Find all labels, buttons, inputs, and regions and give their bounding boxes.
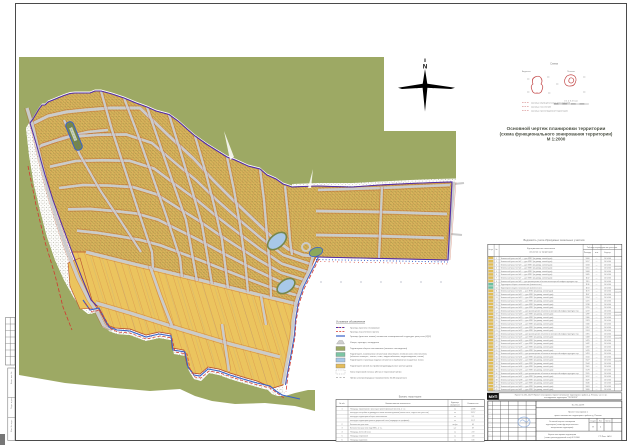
- svg-text:Земельный участок №36 — для ра: Земельный участок №36 — для размещения о…: [501, 372, 580, 375]
- svg-text:—: —: [596, 343, 598, 345]
- svg-text:14: 14: [496, 301, 498, 303]
- svg-text:10:14:00: 10:14:00: [604, 346, 611, 348]
- svg-text:Условные обозначения: Условные обозначения: [336, 320, 366, 324]
- svg-text:2,9: 2,9: [472, 432, 475, 434]
- svg-text:10:14:00: 10:14:00: [604, 363, 611, 365]
- svg-text:шт: шт: [454, 428, 457, 430]
- svg-text:10:14:00: 10:14:00: [604, 314, 611, 316]
- svg-text:17: 17: [496, 310, 498, 312]
- svg-text:Количество участков: Количество участков: [350, 424, 368, 426]
- svg-text:137,7: 137,7: [471, 412, 476, 414]
- svg-text:Земельный участок №28 — для ИЖ: Земельный участок №28 — для ИЖС (индивид…: [501, 345, 554, 348]
- svg-text:1204: 1204: [586, 297, 590, 299]
- svg-text:Земельный участок №13 — для ИЖ: Земельный участок №13 — для ИЖС (индивид…: [501, 296, 554, 299]
- svg-text:—: —: [596, 264, 598, 266]
- svg-text:1221: 1221: [586, 301, 590, 303]
- svg-text:Схема: Схема: [550, 62, 558, 66]
- svg-text:планируемые территории "ПОСЕЛО: планируемые территории "ПОСЕЛОК": [544, 397, 578, 399]
- svg-text:1017: 1017: [586, 261, 590, 263]
- svg-text:1595: 1595: [586, 373, 590, 375]
- svg-text:Количество: Количество: [468, 403, 480, 405]
- svg-text:10:14:00: 10:14:00: [604, 320, 611, 322]
- svg-text:12: 12: [496, 294, 498, 296]
- svg-text:10:14:00: 10:14:00: [604, 343, 611, 345]
- svg-text:10:14:00: 10:14:00: [604, 287, 611, 289]
- svg-text:10:14:00: 10:14:00: [604, 301, 611, 303]
- svg-text:1391: 1391: [586, 333, 590, 335]
- svg-text:3: 3: [496, 264, 497, 266]
- svg-text:Количество участков под ИЖС, в: Количество участков под ИЖС, в т.ч.: [350, 428, 383, 430]
- svg-text:—: —: [596, 301, 598, 303]
- svg-text:1119: 1119: [586, 281, 590, 283]
- svg-text:зона Ж: зона Ж: [615, 291, 621, 293]
- svg-text:28: 28: [496, 346, 498, 348]
- svg-text:1646: 1646: [586, 383, 590, 385]
- svg-text:10:14:00: 10:14:00: [604, 356, 611, 358]
- svg-text:10:14:00: 10:14:00: [604, 278, 611, 280]
- svg-text:10:14:00: 10:14:00: [604, 369, 611, 371]
- svg-text:Земельный участок №22 — для ИЖ: Земельный участок №22 — для ИЖС (индивид…: [501, 326, 554, 329]
- svg-text:29: 29: [496, 350, 498, 352]
- svg-text:Основной чертеж планировки: Основной чертеж планировки: [549, 420, 575, 423]
- svg-text:41: 41: [496, 389, 498, 391]
- svg-text:Земельный участок №16 — для ИЖ: Земельный участок №16 — для ИЖС (индивид…: [501, 306, 554, 309]
- svg-text:Территории общего пользования: Территории общего пользования (зеленые н…: [350, 348, 407, 350]
- svg-text:10:14:00: 10:14:00: [604, 323, 611, 325]
- svg-text:—: —: [596, 389, 598, 391]
- svg-text:40: 40: [496, 386, 498, 388]
- svg-text:объектов на территории: объектов на территории: [529, 252, 553, 254]
- svg-text:—: —: [596, 294, 598, 296]
- svg-text:10:14:00: 10:14:00: [604, 261, 611, 263]
- svg-text:34: 34: [496, 366, 498, 368]
- svg-text:М 1:2000: М 1:2000: [547, 137, 566, 142]
- svg-text:Граница проекта планировки: Граница проекта планировки: [350, 328, 380, 330]
- svg-text:Площадь береговой: Площадь береговой: [350, 434, 368, 437]
- svg-text:—: —: [596, 333, 598, 335]
- svg-text:1: 1: [496, 258, 497, 260]
- svg-text:—: —: [596, 261, 598, 263]
- svg-text:Земельный участок №12 — для ИЖ: Земельный участок №12 — для ИЖС (индивид…: [501, 293, 554, 296]
- svg-text:№: №: [496, 248, 498, 251]
- svg-text:Площадь территории в границах: Площадь территории в границах проектиров…: [350, 408, 406, 410]
- svg-text:1,8: 1,8: [472, 435, 475, 437]
- svg-text:Баланс территории: Баланс территории: [399, 396, 422, 399]
- svg-text:ГП Лист №14: ГП Лист №14: [599, 435, 613, 438]
- svg-text:площадь застройки индивидуальн: площадь застройки индивидуальными жилыми…: [350, 411, 429, 414]
- svg-text:—: —: [596, 376, 598, 378]
- svg-text:№ п/п: № п/п: [339, 402, 344, 405]
- svg-text:~~: ~~: [489, 417, 491, 419]
- svg-text:1578: 1578: [586, 369, 590, 371]
- svg-text:1323: 1323: [586, 320, 590, 322]
- svg-text:10:14:00: 10:14:00: [604, 340, 611, 342]
- svg-text:1459: 1459: [586, 346, 590, 348]
- svg-text:2: 2: [341, 424, 342, 426]
- svg-text:Земельный участок №15 — для ИЖ: Земельный участок №15 — для ИЖС (индивид…: [501, 303, 554, 306]
- svg-text:1187: 1187: [586, 294, 590, 296]
- svg-text:Земельный участок №33 — для ИЖ: Земельный участок №33 — для ИЖС (индивид…: [501, 362, 554, 365]
- svg-text:Земельный участок №39 — для ИЖ: Земельный участок №39 — для ИЖС (индивид…: [501, 382, 554, 385]
- svg-text:1663: 1663: [586, 386, 590, 388]
- svg-text:—: —: [596, 383, 598, 385]
- svg-text:—: —: [596, 353, 598, 355]
- svg-text:10:14:00: 10:14:00: [604, 360, 611, 362]
- svg-text:Земельный участок №26 — для ИЖ: Земельный участок №26 — для ИЖС (индивид…: [501, 339, 554, 342]
- svg-text:Земельный участок №40 — для ИЖ: Земельный участок №40 — для ИЖС (индивид…: [501, 385, 554, 388]
- svg-text:—: —: [596, 278, 598, 280]
- svg-text:5: 5: [341, 435, 342, 437]
- svg-text:1034: 1034: [586, 264, 590, 266]
- svg-text:1425: 1425: [586, 340, 590, 342]
- svg-text:32: 32: [496, 360, 498, 362]
- svg-text:площадь территории общего поль: площадь территории общего пользования: [350, 416, 387, 418]
- svg-text:10:14:00: 10:14:00: [604, 291, 611, 293]
- svg-text:19: 19: [496, 317, 498, 319]
- svg-text:—: —: [596, 281, 598, 283]
- svg-text:1102: 1102: [586, 278, 590, 280]
- svg-text:10:14:00: 10:14:00: [604, 264, 611, 266]
- svg-text:территории (схема функциональн: территории (схема функционального: [546, 423, 579, 426]
- svg-text:Земельный участок №23 — для ИЖ: Земельный участок №23 — для ИЖС (индивид…: [501, 329, 554, 332]
- svg-text:Основной чертеж планировки тер: Основной чертеж планировки территории: [507, 125, 606, 131]
- svg-text:границы проектируемой территор: границы проектируемой территории: [531, 110, 569, 113]
- svg-text:22: 22: [496, 327, 498, 329]
- svg-text:Инв. № подл.: Инв. № подл.: [10, 419, 13, 432]
- svg-text:11: 11: [496, 291, 498, 293]
- svg-text:1527: 1527: [586, 360, 590, 362]
- svg-text:10:14:00: 10:14:00: [604, 284, 611, 286]
- svg-text:30: 30: [496, 353, 498, 355]
- svg-text:Земельный участок №1 — для ИЖС: Земельный участок №1 — для ИЖС (индивид.…: [501, 257, 553, 260]
- svg-text:Земельный участок №18 — для ИЖ: Земельный участок №18 — для ИЖС (индивид…: [501, 313, 554, 316]
- svg-text:площадь территории улично-доро: площадь территории улично-дорожной сети …: [350, 419, 410, 422]
- svg-text:6: 6: [496, 274, 497, 276]
- svg-text:Граница (красные линии) элемен: Граница (красные линии) элементов планир…: [350, 335, 431, 338]
- svg-text:13,7: 13,7: [471, 420, 475, 422]
- svg-text:~~: ~~: [489, 403, 491, 405]
- svg-text:1136: 1136: [586, 284, 590, 286]
- svg-text:Земельный участок №7 — для ИЖС: Земельный участок №7 — для ИЖС (индивид.…: [501, 277, 553, 280]
- svg-text:Зона береговой полосы (20 м) о: Зона береговой полосы (20 м) от берегово…: [350, 371, 402, 374]
- svg-text:~~: ~~: [489, 421, 491, 423]
- svg-text:Земельный участок №2 — для ИЖС: Земельный участок №2 — для ИЖС (индивид.…: [501, 260, 553, 263]
- svg-text:шт/уч: шт/уч: [453, 424, 458, 426]
- svg-text:Взам. инв. №: Взам. инв. №: [10, 371, 13, 384]
- svg-text:26: 26: [496, 340, 498, 342]
- svg-text:—: —: [596, 284, 598, 286]
- svg-text:Земельный участок №31 — для ИЖ: Земельный участок №31 — для ИЖС (индивид…: [501, 355, 554, 358]
- svg-text:16: 16: [496, 307, 498, 309]
- svg-text:—: —: [596, 258, 598, 260]
- svg-text:10:14:00: 10:14:00: [604, 366, 611, 368]
- svg-text:Таблица характеристик участков: Таблица характеристик участков: [587, 247, 617, 249]
- svg-text:Земельный участок №6 — для ИЖС: Земельный участок №6 — для ИЖС (индивид.…: [501, 273, 553, 276]
- svg-text:Пяльма: Пяльма: [567, 71, 576, 73]
- svg-text:Земельный участок №38 — для ИЖ: Земельный участок №38 — для ИЖС (индивид…: [501, 378, 554, 381]
- svg-text:10:14:00: 10:14:00: [604, 281, 611, 283]
- svg-text:6: 6: [341, 439, 342, 441]
- svg-text:9,1: 9,1: [472, 416, 475, 418]
- svg-text:1000: 1000: [586, 258, 590, 260]
- svg-text:—: —: [596, 274, 598, 276]
- svg-text:—: —: [596, 307, 598, 309]
- svg-text:—: —: [596, 297, 598, 299]
- svg-text:~~: ~~: [489, 430, 491, 432]
- svg-text:—: —: [596, 320, 598, 322]
- svg-text:9: 9: [496, 284, 497, 286]
- svg-text:1289: 1289: [586, 314, 590, 316]
- svg-text:Земельный участок №19 — для ИЖ: Земельный участок №19 — для ИЖС (индивид…: [501, 316, 554, 319]
- svg-text:1493: 1493: [586, 353, 590, 355]
- svg-text:10:14:00: 10:14:00: [604, 327, 611, 329]
- svg-text:35: 35: [496, 369, 498, 371]
- svg-text:21: 21: [496, 323, 498, 325]
- svg-text:3: 3: [341, 428, 342, 430]
- svg-text:зона Ж: зона Ж: [615, 268, 621, 270]
- svg-text:~~: ~~: [489, 425, 491, 427]
- svg-text:Земельный участок №4 — для ИЖС: Земельный участок №4 — для ИЖС (индивид.…: [501, 267, 553, 270]
- svg-text:Территория в границах водных о: Территория в границах водных объектов и …: [350, 360, 425, 362]
- svg-text:37: 37: [496, 376, 498, 378]
- svg-text:10:14:00: 10:14:00: [604, 383, 611, 385]
- svg-text:—: —: [596, 340, 598, 342]
- svg-text:—: —: [596, 323, 598, 325]
- svg-text:1510: 1510: [586, 356, 590, 358]
- svg-text:1629: 1629: [586, 379, 590, 381]
- svg-text:Функциональное назначение: Функциональное назначение: [527, 247, 556, 250]
- svg-text:18: 18: [496, 314, 498, 316]
- svg-text:7: 7: [496, 278, 497, 280]
- svg-text:1068: 1068: [586, 271, 590, 273]
- svg-text:—: —: [596, 271, 598, 273]
- svg-text:Земельный участок №5 — для ИЖС: Земельный участок №5 — для ИЖС (индивид.…: [501, 270, 553, 273]
- svg-text:Проект № 231-14-ПП Проект план: Проект № 231-14-ПП Проект планировки и п…: [515, 393, 608, 396]
- svg-text:10:14:00: 10:14:00: [604, 376, 611, 378]
- svg-text:10:14:00: 10:14:00: [604, 337, 611, 339]
- svg-text:—: —: [596, 337, 598, 339]
- svg-text:0,8: 0,8: [472, 439, 475, 441]
- svg-text:зона Ж: зона Ж: [615, 314, 621, 316]
- svg-text:24: 24: [496, 333, 498, 335]
- svg-text:—: —: [596, 366, 598, 368]
- svg-text:4: 4: [341, 432, 342, 434]
- svg-text:Земельный участок №3 — для ИЖС: Земельный участок №3 — для ИЖС (индивид.…: [501, 263, 553, 266]
- svg-text:10:14:00: 10:14:00: [604, 310, 611, 312]
- svg-text:10:14:00: 10:14:00: [604, 294, 611, 296]
- svg-text:Земельный участок №34 — для ИЖ: Земельный участок №34 — для ИЖС (индивид…: [501, 365, 554, 368]
- svg-text:1680: 1680: [586, 389, 590, 391]
- svg-text:1306: 1306: [586, 317, 590, 319]
- svg-text:Земельный участок №14 — для ИЖ: Земельный участок №14 — для ИЖС (индивид…: [501, 300, 554, 303]
- svg-text:—: —: [596, 363, 598, 365]
- svg-text:Ведомость учета образуемых зем: Ведомость учета образуемых земельных уча…: [524, 238, 586, 242]
- svg-text:—: —: [596, 314, 598, 316]
- svg-text:1170: 1170: [586, 291, 590, 293]
- svg-text:зона Ж: зона Ж: [615, 360, 621, 362]
- svg-text:Земельный участок №35 — для ИЖ: Земельный участок №35 — для ИЖС (индивид…: [501, 368, 554, 371]
- svg-text:зона Ж: зона Ж: [615, 383, 621, 385]
- svg-text:1408: 1408: [586, 337, 590, 339]
- svg-text:1085: 1085: [586, 274, 590, 276]
- svg-text:Территория общего пользования: Территория общего пользования (озеленени…: [501, 287, 542, 289]
- svg-text:Граница населенного пункта: Граница населенного пункта: [350, 332, 380, 334]
- svg-text:10:14:00: 10:14:00: [604, 268, 611, 270]
- svg-text:37: 37: [472, 428, 474, 430]
- svg-text:1153: 1153: [586, 287, 590, 289]
- svg-text:5: 5: [496, 271, 497, 273]
- svg-text:Земельный участок №11 — для ИЖ: Земельный участок №11 — для ИЖС (индивид…: [501, 290, 554, 293]
- svg-text:Кадастр: Кадастр: [604, 252, 610, 254]
- svg-text:1612: 1612: [586, 376, 590, 378]
- svg-text:—: —: [596, 268, 598, 270]
- svg-text:1051: 1051: [586, 268, 590, 270]
- svg-text:Площадь зеленой зоны: Площадь зеленой зоны: [350, 431, 371, 434]
- svg-text:20: 20: [496, 320, 498, 322]
- svg-text:—: —: [596, 350, 598, 352]
- svg-text:—: —: [596, 386, 598, 388]
- svg-text:~~: ~~: [489, 408, 491, 410]
- svg-text:Территория жилой застройки (ин: Территория жилой застройки (индивидуальн…: [350, 365, 412, 368]
- svg-text:измерения: измерения: [450, 405, 460, 407]
- svg-text:1442: 1442: [586, 343, 590, 345]
- svg-text:13: 13: [496, 297, 498, 299]
- svg-text:41: 41: [472, 424, 474, 426]
- svg-text:Земельный участок №29 — для ИЖ: Земельный участок №29 — для ИЖС (индивид…: [501, 349, 554, 352]
- svg-text:10:14:00: 10:14:00: [604, 304, 611, 306]
- svg-text:10:14:00: 10:14:00: [604, 379, 611, 381]
- svg-text:38: 38: [496, 379, 498, 381]
- svg-text:10:14:00: 10:14:00: [604, 274, 611, 276]
- svg-text:—: —: [596, 317, 598, 319]
- svg-text:1272: 1272: [586, 310, 590, 312]
- svg-text:10:14:00: 10:14:00: [604, 373, 611, 375]
- svg-text:границы поселений: границы поселений: [531, 106, 552, 109]
- svg-text:Авдеево: Авдеево: [522, 70, 531, 73]
- svg-text:23: 23: [496, 330, 498, 332]
- svg-text:4: 4: [496, 268, 497, 270]
- svg-text:Площадь водоемов: Площадь водоемов: [350, 439, 367, 441]
- svg-text:1374: 1374: [586, 330, 590, 332]
- svg-text:39: 39: [496, 383, 498, 385]
- svg-text:Земельный участок №37 — для ИЖ: Земельный участок №37 — для ИЖС (индивид…: [501, 375, 554, 378]
- svg-text:33: 33: [496, 363, 498, 365]
- svg-text:Земельный участок №8 — для раз: Земельный участок №8 — для размещения об…: [501, 280, 579, 283]
- svg-text:0 1 2 3 4 5 км: 0 1 2 3 4 5 км: [564, 101, 578, 103]
- svg-text:Земельный участок №30 — для ра: Земельный участок №30 — для размещения о…: [501, 352, 580, 355]
- svg-text:—: —: [596, 291, 598, 293]
- svg-text:Чертеж планировки территории: Чертеж планировки территории: [548, 434, 576, 436]
- svg-text:Подп. и дата: Подп. и дата: [11, 396, 13, 409]
- svg-text:—: —: [596, 330, 598, 332]
- svg-text:27: 27: [496, 343, 498, 345]
- svg-text:Проект планировки и: Проект планировки и: [568, 412, 588, 414]
- svg-text:Земельный участок №25 — для ИЖ: Земельный участок №25 — для ИЖС (индивид…: [501, 336, 554, 339]
- svg-text:1: 1: [341, 408, 342, 410]
- svg-text:Земельный участок №24 — для ра: Земельный участок №24 — для размещения о…: [501, 332, 580, 335]
- svg-text:—: —: [596, 287, 598, 289]
- svg-text:1544: 1544: [586, 363, 590, 365]
- svg-text:25: 25: [496, 337, 498, 339]
- svg-text:36: 36: [496, 373, 498, 375]
- svg-text:1340: 1340: [586, 323, 590, 325]
- svg-text:~~: ~~: [489, 434, 491, 436]
- svg-text:10:14:00: 10:14:00: [604, 350, 611, 352]
- svg-text:—: —: [596, 360, 598, 362]
- svg-text:№ 231-14-ПП: № 231-14-ПП: [572, 404, 585, 407]
- svg-text:Линии электропередачи напряжен: Линии электропередачи напряжением 10 кВ …: [350, 378, 407, 380]
- svg-text:10:14:00: 10:14:00: [604, 297, 611, 299]
- svg-text:Земельный участок №17 — для ра: Земельный участок №17 — для размещения о…: [501, 309, 580, 312]
- svg-text:1357: 1357: [586, 327, 590, 329]
- svg-text:N: N: [423, 65, 427, 71]
- svg-text:Земельный участок №27 — для ИЖ: Земельный участок №27 — для ИЖС (индивид…: [501, 342, 554, 345]
- svg-text:31: 31: [496, 356, 498, 358]
- svg-text:—: —: [596, 346, 598, 348]
- svg-text:8: 8: [496, 281, 497, 283]
- svg-text:Единица: Единица: [451, 402, 460, 404]
- svg-text:—: —: [596, 369, 598, 371]
- svg-text:—: —: [596, 373, 598, 375]
- svg-text:проект межевания территории в: проект межевания территории в районе д. …: [554, 414, 602, 417]
- svg-text:(схема улично-дорожной сети) М: (схема улично-дорожной сети) М 1:2000: [544, 436, 579, 439]
- svg-text:1561: 1561: [586, 366, 590, 368]
- svg-text:1238: 1238: [586, 304, 590, 306]
- svg-text:10:14:00: 10:14:00: [604, 353, 611, 355]
- svg-text:10:14:00: 10:14:00: [604, 386, 611, 388]
- svg-text:№ уч: № уч: [489, 248, 493, 251]
- svg-text:10:14:00: 10:14:00: [604, 317, 611, 319]
- svg-text:10:14:00: 10:14:00: [604, 389, 611, 391]
- svg-text:10:14:00: 10:14:00: [604, 258, 611, 260]
- svg-text:10:14:00: 10:14:00: [604, 307, 611, 309]
- svg-text:10:14:00: 10:14:00: [604, 330, 611, 332]
- svg-text:зона Ж: зона Ж: [615, 337, 621, 339]
- svg-text:—: —: [596, 327, 598, 329]
- svg-text:Земельный участок №32 — для ИЖ: Земельный участок №32 — для ИЖС (индивид…: [501, 359, 554, 362]
- svg-text:(объекты электро-, тепло-, газ: (объекты электро-, тепло-, газо-, водосн…: [350, 356, 424, 358]
- svg-text:Стадия: Стадия: [590, 421, 596, 423]
- svg-text:10:14:00: 10:14:00: [604, 271, 611, 273]
- svg-text:—: —: [596, 304, 598, 306]
- svg-text:—: —: [596, 310, 598, 312]
- svg-text:Площадь: Площадь: [584, 252, 591, 254]
- svg-text:—: —: [596, 379, 598, 381]
- svg-text:Листов: Листов: [605, 421, 610, 423]
- svg-text:Наименование показателя: Наименование показателя: [386, 403, 411, 405]
- svg-text:Земельный участок №21 — для ИЖ: Земельный участок №21 — для ИЖС (индивид…: [501, 322, 554, 325]
- svg-text:10: 10: [496, 287, 498, 289]
- svg-text:Территория общего пользования: Территория общего пользования (озеленени…: [501, 284, 542, 286]
- svg-text:Лист: Лист: [599, 421, 603, 423]
- svg-text:Земельный участок №41 — для ИЖ: Земельный участок №41 — для ИЖС (индивид…: [501, 388, 554, 391]
- svg-text:—: —: [596, 356, 598, 358]
- svg-text:~~: ~~: [489, 412, 491, 414]
- svg-text:зонирования территории): зонирования территории): [551, 427, 574, 429]
- svg-text:10:14:00: 10:14:00: [604, 333, 611, 335]
- svg-text:1476: 1476: [586, 350, 590, 352]
- svg-text:1,188: 1,188: [471, 408, 476, 410]
- svg-text:15: 15: [496, 304, 498, 306]
- svg-text:МУП: МУП: [489, 394, 498, 399]
- svg-text:1255: 1255: [586, 307, 590, 309]
- svg-text:Земельный участок №20 — для ИЖ: Земельный участок №20 — для ИЖС (индивид…: [501, 319, 554, 322]
- svg-text:2: 2: [496, 261, 497, 263]
- svg-text:Улицы, проезды, автодороги: Улицы, проезды, автодороги: [350, 342, 380, 344]
